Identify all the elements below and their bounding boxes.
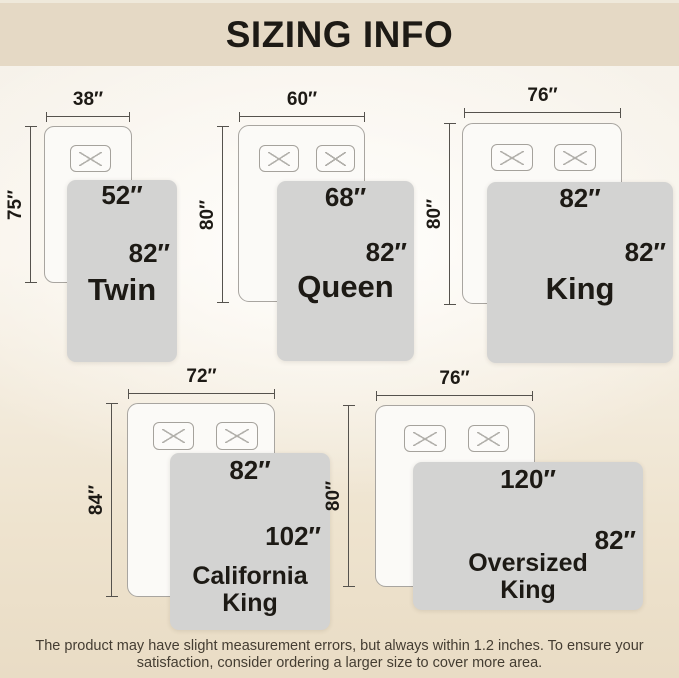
bed-length-measure: 80″: [343, 405, 355, 587]
size-name: Oversized King: [413, 550, 643, 604]
diagram-oversized-king: 76″ 80″ 120″ 82″ Oversized King: [0, 0, 679, 678]
pillow: [404, 425, 446, 452]
diagram-area: 38″ 75″ 52″ 82″ Twin 60″: [0, 0, 679, 678]
size-name-line: Oversized: [413, 550, 643, 577]
blanket: 120″ 82″ Oversized King: [413, 462, 643, 610]
blanket-width-label: 120″: [413, 464, 643, 495]
bed-width-label: 76″: [377, 368, 532, 390]
footer-note-line: satisfaction, consider ordering a larger…: [0, 655, 679, 672]
pillow-x-icon: [413, 432, 436, 446]
footer-note: The product may have slight measurement …: [0, 638, 679, 672]
pillow: [468, 425, 509, 452]
bed-length-label: 80″: [323, 481, 345, 511]
pillow-x-icon: [477, 432, 500, 446]
footer-note-line: The product may have slight measurement …: [0, 638, 679, 655]
bed-width-measure: 76″: [376, 391, 533, 401]
sizing-info-page: SIZING INFO 38″ 75″ 52″ 82″ Twin: [0, 0, 679, 678]
size-name-line: King: [413, 577, 643, 604]
